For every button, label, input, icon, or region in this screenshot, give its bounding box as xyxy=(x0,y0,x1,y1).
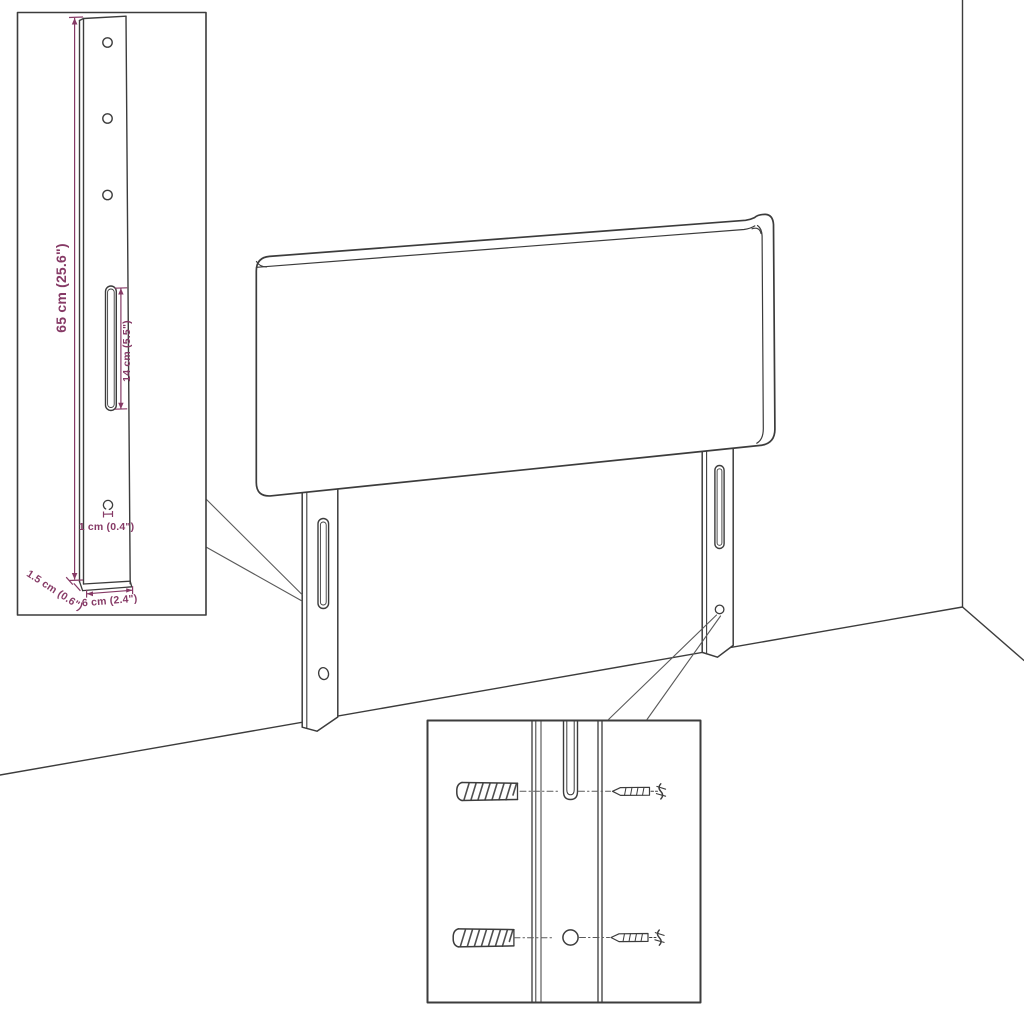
slot-length-label: 14 cm (5.5") xyxy=(121,320,133,382)
right-leg-slot xyxy=(715,466,724,549)
hole-diameter-label: 1 cm (0.4") xyxy=(79,521,135,533)
headboard-assembly-diagram: 65 cm (25.6") 14 cm (5.5") 1 cm (0.4") 6… xyxy=(0,0,1024,1024)
bracket-height-label: 65 cm (25.6") xyxy=(53,243,69,332)
leg-dimension-inset: 65 cm (25.6") 14 cm (5.5") 1 cm (0.4") 6… xyxy=(18,13,207,616)
dimension-tick-65cm-bottom xyxy=(69,580,83,581)
dimension-tick-65cm-top xyxy=(69,17,83,18)
headboard-right-leg xyxy=(702,444,733,657)
mounting-detail-inset xyxy=(428,721,701,1003)
left-leg-slot xyxy=(318,519,329,609)
diagram-canvas: 65 cm (25.6") 14 cm (5.5") 1 cm (0.4") 6… xyxy=(0,0,1024,1024)
